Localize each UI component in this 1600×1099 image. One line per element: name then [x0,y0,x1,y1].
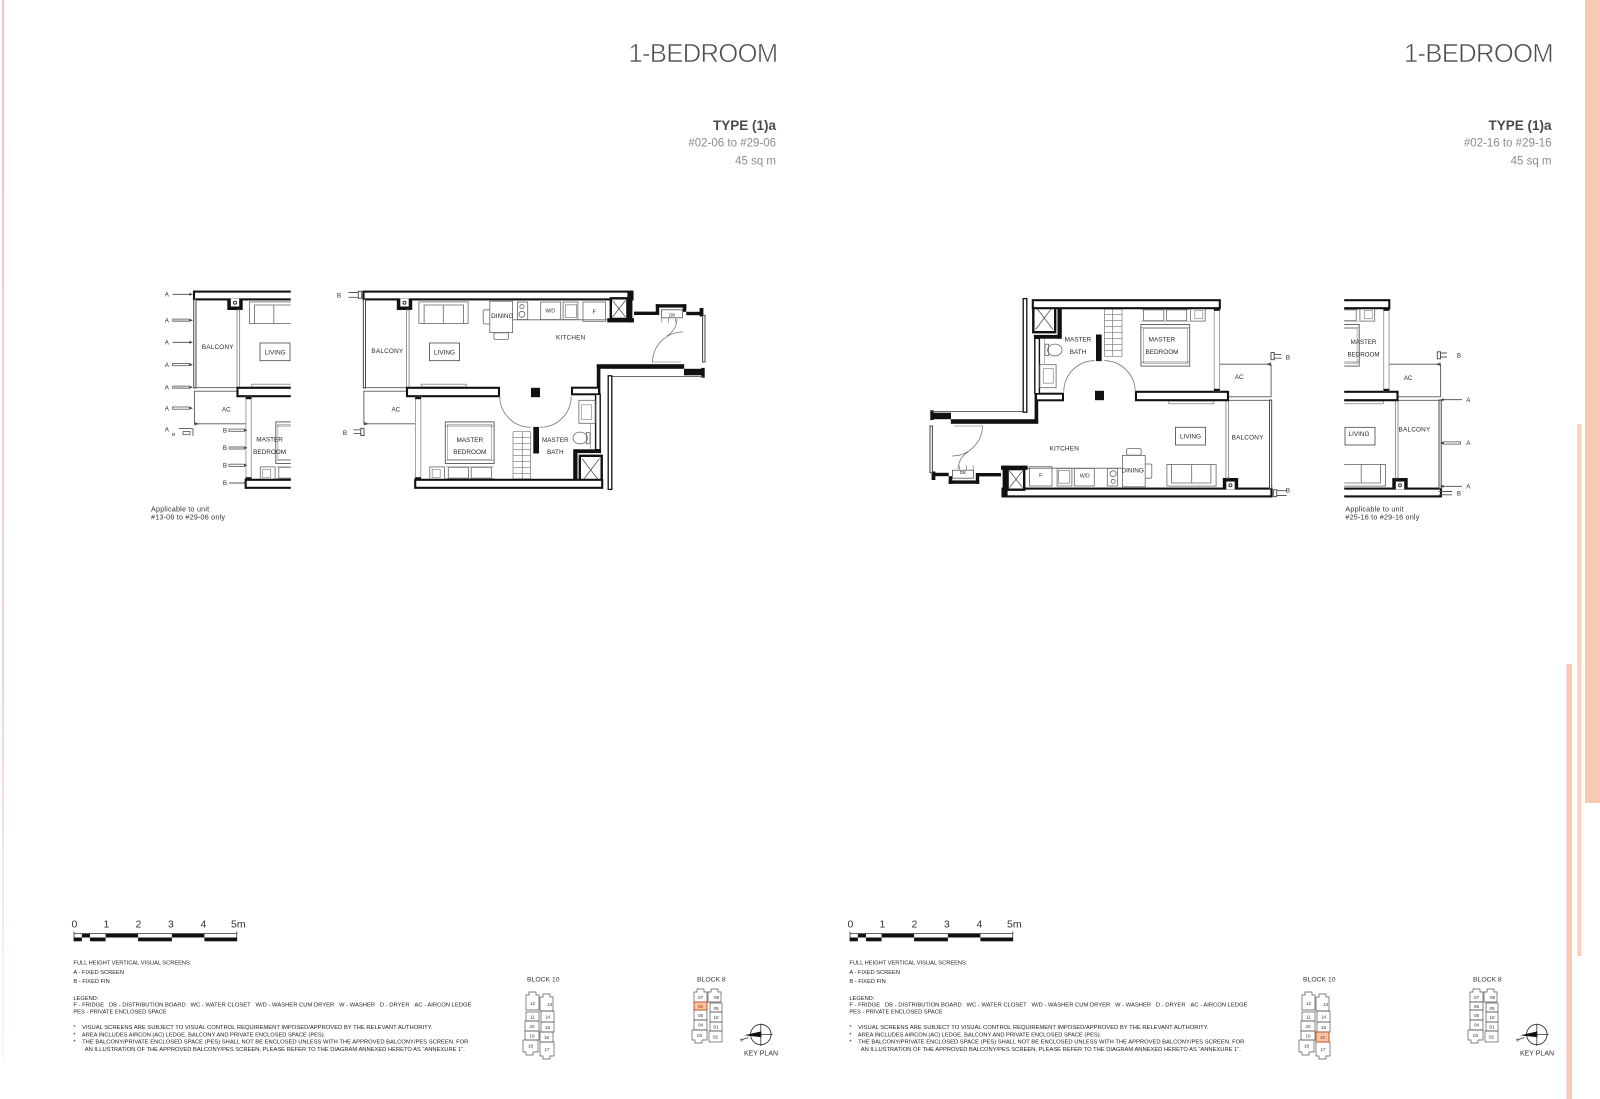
svg-text:1-BEDROOM: 1-BEDROOM [1404,40,1553,68]
svg-text:LIVING: LIVING [434,349,455,356]
svg-text:MASTER: MASTER [1149,337,1176,344]
svg-text:DINING: DINING [1122,467,1144,474]
svg-text:KITCHEN: KITCHEN [556,335,586,342]
svg-text:10: 10 [713,1015,719,1020]
svg-text:04: 04 [698,1023,704,1028]
svg-text:AC: AC [222,407,231,414]
svg-text:#13-06 to #29-06 only: #13-06 to #29-06 only [151,513,225,522]
svg-text:DINING: DINING [491,313,513,320]
svg-text:* AREA INCLUDES AIRCON (AC): * AREA INCLUDES AIRCON (AC) LEDGE, BALCO… [73,1032,325,1038]
svg-text:BLOCK 8: BLOCK 8 [697,977,726,984]
svg-text:BEDROOM: BEDROOM [453,449,486,456]
svg-text:14: 14 [545,1015,551,1020]
svg-text:B: B [223,480,227,487]
svg-text:BATH: BATH [547,449,564,456]
svg-text:08: 08 [714,995,720,1000]
svg-text:5m: 5m [231,919,246,931]
svg-text:B: B [1286,487,1290,494]
svg-text:1-BEDROOM: 1-BEDROOM [628,40,777,68]
svg-text:AN ILLUSTRATION OF THE APPROVE: AN ILLUSTRATION OF THE APPROVED BALCONY/… [85,1047,465,1053]
svg-text:BEDROOM: BEDROOM [1145,349,1178,356]
svg-text:07: 07 [698,995,704,1000]
svg-text:W/D: W/D [1080,474,1090,480]
svg-text:A - FIXED SCREEN: A - FIXED SCREEN [73,970,124,976]
svg-text:02: 02 [713,1035,719,1040]
svg-text:AC: AC [391,407,400,414]
svg-text:MASTER: MASTER [256,437,283,444]
svg-text:LIVING: LIVING [1180,434,1201,441]
svg-text:DB: DB [669,312,675,317]
svg-text:TYPE (1)a: TYPE (1)a [1488,118,1552,133]
svg-text:BEDROOM: BEDROOM [1348,351,1380,358]
svg-text:F: F [592,309,596,315]
svg-text:19: 19 [529,1034,535,1039]
svg-text:2: 2 [136,919,142,931]
svg-text:45 sq m: 45 sq m [1511,156,1552,168]
svg-text:BEDROOM: BEDROOM [253,449,286,456]
svg-text:F - FRIDGE DB - DISTRIBUTION: F - FRIDGE DB - DISTRIBUTION BOARD WC - … [73,1003,471,1009]
svg-text:B: B [223,445,227,452]
svg-text:#02-16 to #29-16: #02-16 to #29-16 [1464,138,1552,150]
svg-text:B: B [343,430,347,437]
svg-text:B: B [223,463,227,470]
svg-text:0: 0 [72,919,78,931]
svg-text:* THE BALCONY/PRIVATE ENCLO: * THE BALCONY/PRIVATE ENCLOSED SPACE (PE… [73,1040,468,1046]
svg-text:B: B [1286,355,1290,362]
svg-text:11: 11 [530,1015,535,1020]
svg-text:MASTER: MASTER [456,437,483,444]
svg-text:16: 16 [544,1035,550,1040]
svg-text:BALCONY: BALCONY [371,348,403,355]
svg-text:12: 12 [530,1001,536,1006]
svg-text:1: 1 [104,919,110,931]
svg-text:MASTER: MASTER [542,437,569,444]
svg-text:45 sq m: 45 sq m [735,156,776,168]
svg-text:LIVING: LIVING [265,349,286,356]
svg-text:01: 01 [713,1025,719,1030]
svg-text:DB: DB [960,470,966,475]
svg-text:PES - PRIVATE ENCLOSED SPACE: PES - PRIVATE ENCLOSED SPACE [73,1010,166,1016]
svg-text:#02-06 to #29-06: #02-06 to #29-06 [688,138,776,150]
svg-text:B: B [337,293,341,300]
svg-text:BLOCK 10: BLOCK 10 [527,977,560,984]
svg-text:F: F [1039,473,1043,479]
svg-text:4: 4 [201,919,207,931]
svg-text:#25-16 to #29-16 only: #25-16 to #29-16 only [1345,513,1419,522]
svg-text:LEGEND:: LEGEND: [73,996,98,1002]
svg-text:3: 3 [168,919,174,931]
svg-text:* VISUAL SCREENS ARE SUBJEC: * VISUAL SCREENS ARE SUBJECT TO VISUAL C… [73,1025,432,1031]
svg-text:FULL HEIGHT VERTICAL VISUAL SC: FULL HEIGHT VERTICAL VISUAL SCREENS: [73,961,191,967]
svg-text:18: 18 [528,1044,534,1049]
svg-text:B: B [1457,491,1461,498]
svg-text:N: N [740,1038,743,1043]
svg-text:09: 09 [713,1006,719,1011]
svg-text:BALCONY: BALCONY [1232,435,1264,442]
svg-text:AC: AC [1235,374,1244,381]
svg-text:BALCONY: BALCONY [202,344,234,351]
svg-text:20: 20 [529,1024,535,1029]
svg-text:13: 13 [547,1002,553,1007]
svg-text:MASTER: MASTER [1351,339,1377,346]
svg-text:B: B [1457,353,1461,360]
svg-text:B: B [172,432,175,438]
svg-text:03: 03 [697,1033,703,1038]
svg-text:17: 17 [544,1047,550,1052]
svg-text:LIVING: LIVING [1349,431,1370,438]
svg-text:16: 16 [1320,1035,1326,1040]
svg-text:TYPE (1)a: TYPE (1)a [713,118,777,133]
svg-text:AC: AC [1404,375,1413,382]
svg-text:05: 05 [698,1013,704,1018]
svg-text:KEY PLAN: KEY PLAN [744,1051,778,1058]
svg-text:W/D: W/D [545,309,555,315]
svg-text:B: B [223,427,227,434]
svg-text:BATH: BATH [1070,349,1087,356]
svg-text:15: 15 [545,1025,551,1030]
svg-text:MASTER: MASTER [1065,337,1092,344]
svg-text:BALCONY: BALCONY [1399,427,1431,434]
svg-text:B - FIXED FIN: B - FIXED FIN [73,979,109,985]
svg-text:06: 06 [698,1004,704,1009]
svg-text:KITCHEN: KITCHEN [1050,446,1080,453]
